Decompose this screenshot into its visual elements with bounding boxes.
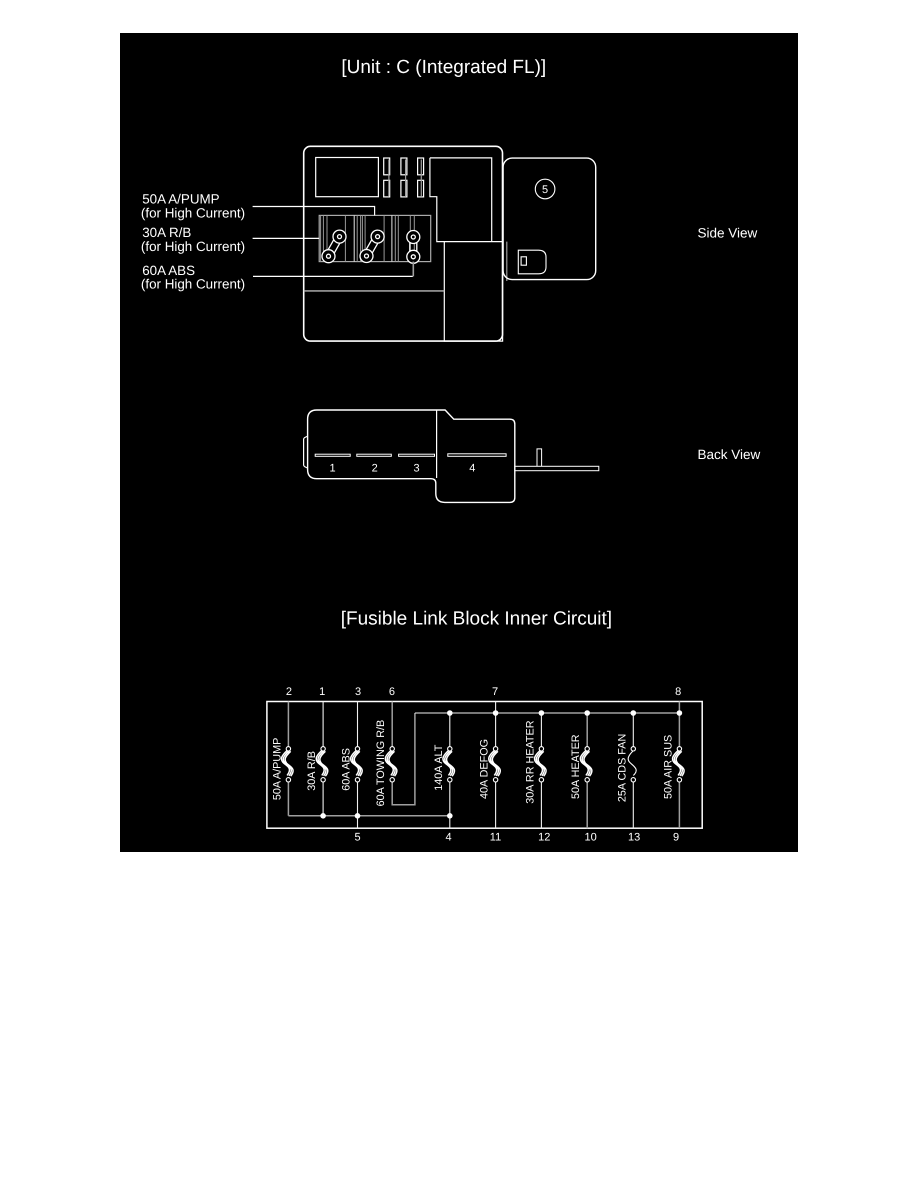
svg-text:Side View: Side View: [698, 225, 758, 240]
svg-text:(for High Current): (for High Current): [141, 277, 245, 292]
svg-text:[Fusible Link Block Inner Circ: [Fusible Link Block Inner Circuit]: [341, 609, 612, 630]
svg-text:60A TOWING R/B: 60A TOWING R/B: [375, 720, 387, 807]
svg-text:8: 8: [675, 686, 681, 698]
svg-text:[Unit : C (Integrated FL)]: [Unit : C (Integrated FL)]: [341, 57, 546, 78]
svg-text:10: 10: [584, 832, 596, 844]
svg-text:50A A/PUMP: 50A A/PUMP: [142, 192, 219, 207]
svg-text:13: 13: [628, 832, 640, 844]
svg-text:30A R/B: 30A R/B: [142, 225, 191, 240]
svg-text:5: 5: [542, 184, 548, 196]
svg-text:50A A/PUMP: 50A A/PUMP: [271, 738, 283, 800]
svg-text:12: 12: [538, 832, 550, 844]
svg-text:30A R/B: 30A R/B: [306, 751, 318, 791]
svg-text:1: 1: [330, 462, 336, 474]
svg-text:(for High Current): (for High Current): [141, 239, 245, 254]
svg-text:50A HEATER: 50A HEATER: [570, 734, 582, 799]
svg-text:30A RR HEATER: 30A RR HEATER: [524, 720, 536, 803]
svg-text:5: 5: [355, 832, 361, 844]
svg-text:40A DEFOG: 40A DEFOG: [479, 739, 491, 799]
svg-text:60A ABS: 60A ABS: [341, 748, 353, 791]
svg-text:4: 4: [446, 832, 452, 844]
svg-text:1: 1: [319, 686, 325, 698]
svg-text:2: 2: [372, 462, 378, 474]
svg-text:50A AIR SUS: 50A AIR SUS: [662, 735, 674, 799]
svg-text:11: 11: [490, 832, 501, 844]
svg-text:9: 9: [673, 832, 679, 844]
svg-text:25A CDS FAN: 25A CDS FAN: [616, 734, 628, 802]
svg-text:Back View: Back View: [698, 447, 761, 462]
svg-text:(for High Current): (for High Current): [141, 206, 245, 221]
svg-text:3: 3: [355, 686, 361, 698]
svg-text:6: 6: [389, 686, 395, 698]
svg-text:7: 7: [492, 686, 498, 698]
svg-text:2: 2: [286, 686, 292, 698]
svg-text:3: 3: [413, 462, 419, 474]
svg-text:140A ALT: 140A ALT: [433, 744, 445, 790]
svg-text:4: 4: [469, 462, 475, 474]
